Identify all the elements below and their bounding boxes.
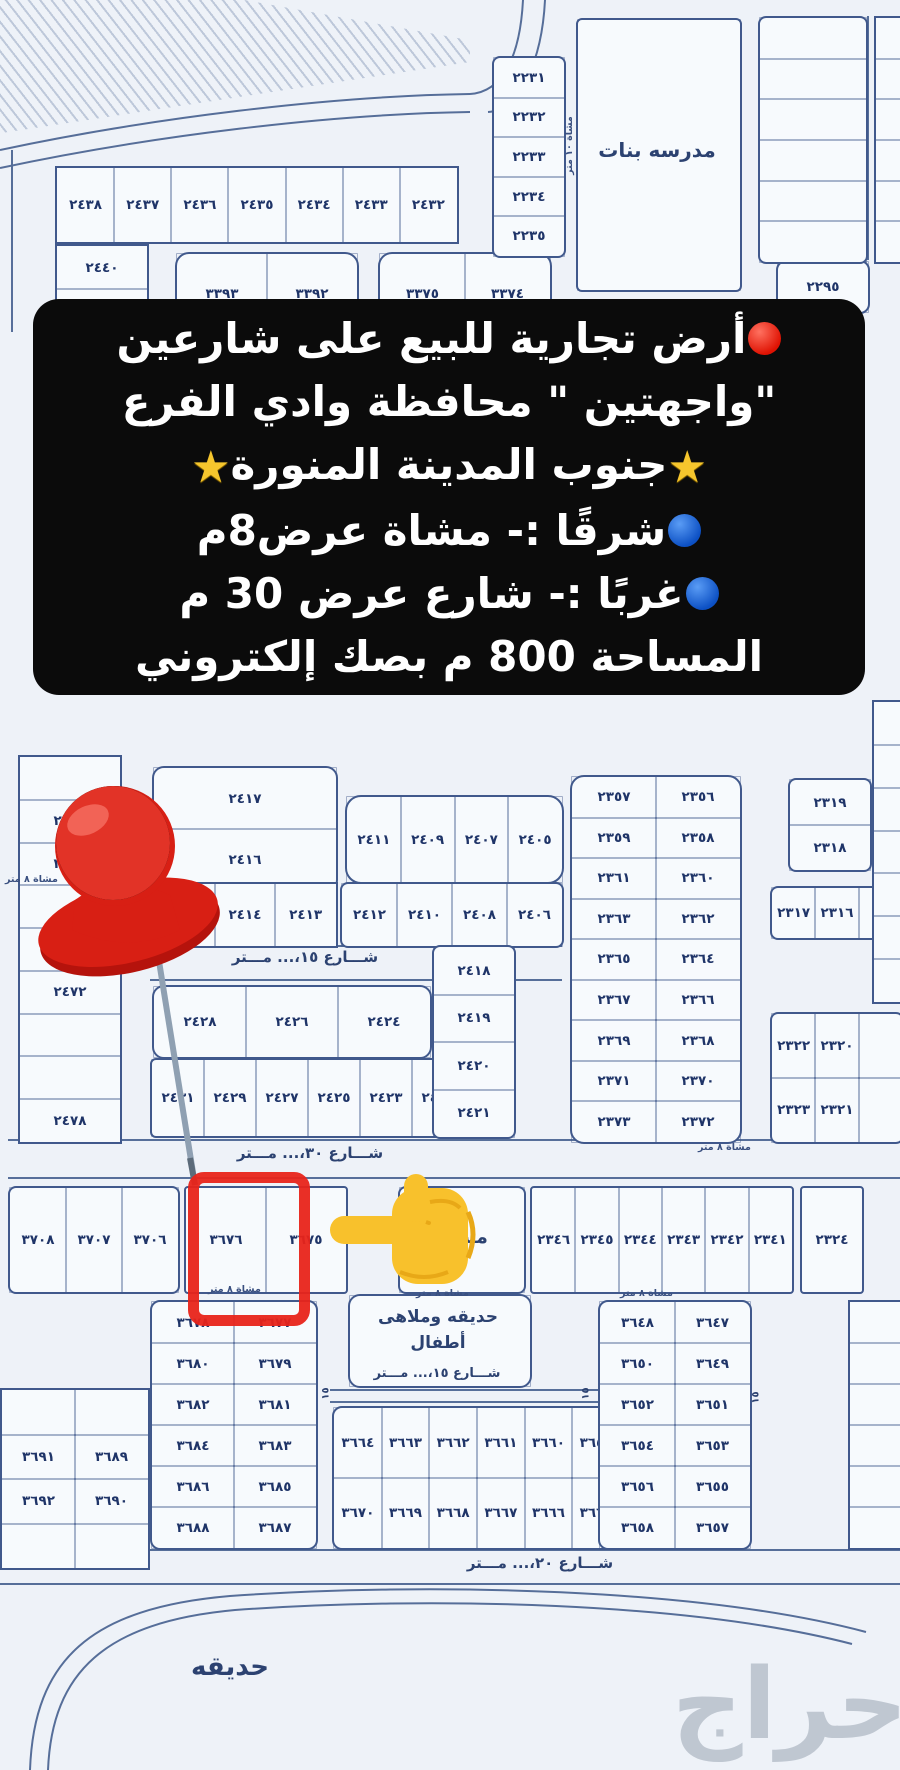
school-label: مدرسه بنات [576,138,738,162]
blue-circle-icon [686,577,719,610]
plot-cell: ٣٦٩١ [2,1435,75,1480]
plot-block-school_strip: ٢٢٣١٢٢٣٢٢٢٣٣٢٢٣٤٢٢٣٥ [492,56,566,258]
park-playground-label: حديقه وملاهى أطفال [352,1304,524,1357]
plot-cell: ٢٤٢٦ [246,987,338,1057]
plot-cell: ٢٣٧٢ [656,1101,740,1142]
plot-block-row2431: ٢٤٣١٢٤٢٩٢٤٢٧٢٤٢٥٢٤٢٣٢٤٢٢ [150,1058,466,1138]
listing-line: ★جنوب المدينة المنورة★ [33,433,865,499]
plot-cell: ٢٤٠٧ [455,797,509,882]
star-icon: ★ [191,442,230,493]
plot-cell: ٢٤١٠ [397,884,452,946]
plot-block-row2411: ٢٤١١٢٤٠٩٢٤٠٧٢٤٠٥ [345,795,564,884]
plot-cell: ٢٣٦٥ [572,939,656,980]
plot-cell: ٢٢٣٤ [494,177,564,217]
plot-cell: ٢٤١٤ [215,884,276,946]
plot-cell: ٢٤٣١ [152,1060,204,1136]
plot-cell: ٢٣٦٢ [656,899,740,940]
plot-cell: ٢٤٢٠ [434,1042,514,1090]
plot-cell: ٢٢٣٥ [494,216,564,256]
plot-cell: ٢٤٠٩ [401,797,455,882]
street-15m-label-mid: شـــارع ١٥،... مـــتر [200,948,410,966]
plot-cell: ٢٣٥٧ [572,777,656,818]
plot-cell: ٣٦٦٩ [382,1478,430,1548]
plot-cell [760,18,866,59]
plot-cell [876,18,900,59]
plot-block-bl_mid: ٣٦٦٤٣٦٦٣٣٦٦٢٣٦٦١٣٦٦٠٣٦٥٩٣٦٧٠٣٦٦٩٣٦٦٨٣٦٦٧… [332,1406,622,1550]
plot-block-bl_right: ٣٦٤٨٣٦٤٧٣٦٥٠٣٦٤٩٣٦٥٢٣٦٥١٣٦٥٤٣٦٥٣٣٦٥٦٣٦٥٥… [598,1300,752,1550]
width-15-tick-1: ١٥ [321,1387,332,1399]
street-20m-label: شـــارع ٢٠،... مـــتر [420,1554,660,1572]
plot-block-row3708: ٣٧٠٨٣٧٠٧٣٧٠٦ [8,1186,180,1294]
plot-block-bl_right_edge [848,1300,900,1550]
plot-cell: ٣٦٦٤ [334,1408,382,1478]
plot-cell: ٢٤٣٨ [57,168,114,242]
plot-cell [876,99,900,140]
plot-cell [760,181,866,222]
street-15m-label-bottom: شـــارع ١٥،... مـــتر [332,1366,542,1381]
plot-cell: ٢٣٧١ [572,1061,656,1102]
plot-cell: ٣٦٥٠ [600,1343,675,1384]
plot-cell [760,59,866,100]
plot-cell: ٢٤١١ [347,797,401,882]
highlight-rectangle [188,1172,310,1326]
plot-cell [760,140,866,181]
parcel-blocks: ٢٤٣٨٢٤٣٧٢٤٣٦٢٤٣٥٢٤٣٤٢٤٣٣٢٤٣٢٢٤٤٠٢٤٤٢٣٣٩٣… [0,0,900,1770]
plot-cell: ٣٦٥٨ [600,1507,675,1548]
listing-line-text: غربًا :- شارع عرض 30 م [179,569,683,618]
plot-cell: ٢٣٦١ [572,858,656,899]
plot-cell [859,1078,900,1142]
plot-cell: ٢٣٥٦ [656,777,740,818]
plot-cell: ٣٦٨٤ [152,1425,234,1466]
listing-image: ٢٤٣٨٢٤٣٧٢٤٣٦٢٤٣٥٢٤٣٤٢٤٣٣٢٤٣٢٢٤٤٠٢٤٤٢٣٣٩٣… [0,0,900,1770]
plot-cell: ٣٦٥٧ [675,1507,750,1548]
plot-cell: ٢٤٤٠ [57,246,147,289]
plot-cell [760,99,866,140]
ped-path-8m-label-4: مشاة ٨ متر [620,1288,673,1299]
plot-cell: ٢٤٣٣ [343,168,400,242]
plot-cell: ٢٢٣٢ [494,98,564,138]
plot-cell [874,916,900,959]
listing-line: المساحة 800 م بصك إلكتروني [33,625,865,688]
plot-cell: ٢٣٤١ [749,1188,792,1292]
plot-cell [876,221,900,262]
plot-cell: ٢٣٢٠ [815,1014,858,1078]
plot-cell: ٢٤١٦ [154,829,336,890]
plot-cell: ٣٦٨٩ [75,1435,148,1480]
plot-cell: ٢٤٦٤ [20,800,120,843]
plot-cell: ٢٤٢٤ [338,987,430,1057]
plot-block-col2319: ٢٣١٩٢٣١٨ [788,778,872,872]
plot-cell [876,181,900,222]
ped-path-10m-label: مشاة ١٠ متر [564,116,575,175]
plot-cell: ٢٤٠٦ [507,884,562,946]
plot-block-tr_edge [874,16,900,264]
plot-cell [760,221,866,262]
plot-block-pairs2356: ٢٣٥٧٢٣٥٦٢٣٥٩٢٣٥٨٢٣٦١٢٣٦٠٢٣٦٣٢٣٦٢٢٣٦٥٢٣٦٤… [570,775,742,1144]
plot-cell: ٢٣٧٠ [656,1061,740,1102]
plot-block-blk2417: ٢٤١٧٢٤١٦ [152,766,338,892]
plot-cell: ٣٦٨٠ [152,1343,234,1384]
listing-line-text: جنوب المدينة المنورة [231,440,668,489]
plot-cell: ٢٣٤٢ [705,1188,748,1292]
listing-line: شرقًا :- مشاة عرض8م [33,499,865,562]
plot-cell: ٣٦٥٢ [600,1384,675,1425]
plot-cell: ٢٣٦٨ [656,1020,740,1061]
plot-cell: ٢٤٣٦ [171,168,228,242]
plot-cell: ٢٤٢٥ [308,1060,360,1136]
plot-cell [874,959,900,1002]
plot-cell: ٣٦٤٧ [675,1302,750,1343]
plot-cell: ٣٦٦٨ [429,1478,477,1548]
plot-cell: ٣٦٥٦ [600,1466,675,1507]
ped-path-8m-label-5: مشاة ٨ متر [698,1142,751,1153]
plot-block-rows2322: ٢٣٢٢٢٣٢٠٢٣٢٣٢٣٢١ [770,1012,900,1144]
listing-line: "واجهتين " محافظة وادي الفرع [33,370,865,433]
plot-cell: ٣٦٤٩ [675,1343,750,1384]
plot-cell [874,831,900,874]
plot-cell: ٢٣٧٣ [572,1101,656,1142]
plot-cell: ٢٣٦٧ [572,980,656,1021]
plot-cell: ٣٦٦٠ [525,1408,573,1478]
plot-cell: ٢٣٤٥ [575,1188,618,1292]
plot-cell: ٢٤٢١ [434,1090,514,1138]
haraj-watermark: حراج [672,1648,900,1762]
plot-cell: ٣٦٥٣ [675,1425,750,1466]
plot-cell: ٢٤٣٤ [286,168,343,242]
plot-cell: ٢٣٢١ [815,1078,858,1142]
plot-cell [75,1524,148,1569]
plot-cell: ٢٣١٨ [790,825,870,870]
plot-cell: ٢٤٧٨ [20,1099,120,1142]
plot-cell [876,59,900,100]
plot-cell: ٣٦٨٦ [152,1466,234,1507]
plot-cell [850,1384,900,1425]
plot-cell [850,1425,900,1466]
plot-block-row2428: ٢٤٢٨٢٤٢٦٢٤٢٤ [152,985,432,1059]
plot-cell: ٣٦٩٠ [75,1479,148,1524]
plot-cell: ٢٣٤٣ [662,1188,705,1292]
plot-block-top_row: ٢٤٣٨٢٤٣٧٢٤٣٦٢٤٣٥٢٤٣٤٢٤٣٣٢٤٣٢ [55,166,459,244]
plot-cell: ٣٦٦١ [477,1408,525,1478]
street-30m-label: شـــارع ٣٠،... مـــتر [190,1144,430,1162]
width-15-tick-4: ١٥ [139,901,150,913]
plot-cell [850,1343,900,1384]
plot-block-row2415b: ٢٤١٢٢٤١٠٢٤٠٨٢٤٠٦ [340,882,564,948]
plot-cell: ٢٤٠٨ [452,884,507,946]
plot-block-bl_far_left: ٣٦٩١٣٦٨٩٣٦٩٢٣٦٩٠ [0,1388,150,1570]
plot-cell [874,788,900,831]
plot-cell: ٢٣٥٩ [572,818,656,859]
plot-cell: ٢٤٢٧ [256,1060,308,1136]
plot-cell [850,1302,900,1343]
plot-cell: ٢٣٦٠ [656,858,740,899]
plot-cell: ٢٣٤٦ [532,1188,575,1292]
listing-line-text: أرض تجارية للبيع على شارعين [117,314,747,363]
plot-cell: ٢٣١٦ [815,888,858,938]
plot-cell: ٢٤١٥ [154,884,215,946]
plot-cell: ٣٦٨٥ [234,1466,316,1507]
plot-cell: ٣٦٦٣ [382,1408,430,1478]
plot-cell: ٣٦٧٠ [334,1478,382,1548]
plot-cell: ٣٧٠٨ [10,1188,66,1292]
plot-cell: ٢٣٢٤ [802,1188,862,1292]
plot-block-row2346: ٢٣٤٦٢٣٤٥٢٣٤٤٢٣٤٣٢٣٤٢٢٣٤١ [530,1186,794,1294]
plot-cell [874,745,900,788]
ped-path-8m-label-1: مشاة ٨ متر [5,874,58,885]
plot-cell: ٢٣٦٩ [572,1020,656,1061]
width-15-tick-2: ١٥ [581,1387,592,1399]
listing-line-text: "واجهتين " محافظة وادي الفرع [122,377,777,426]
plot-cell: ٣٦٦٦ [525,1478,573,1548]
plot-block-mid_right_edge [872,700,900,1004]
listing-line: غربًا :- شارع عرض 30 م [33,562,865,625]
plot-cell: ٢٤٢٩ [204,1060,256,1136]
plot-cell: ٣٦٧٩ [234,1343,316,1384]
plot-cell: ٢٤٠٥ [508,797,562,882]
plot-cell: ٢٢٣٣ [494,137,564,177]
plot-cell: ٢٣١٧ [772,888,815,938]
plot-cell: ٣٦٨٢ [152,1384,234,1425]
plot-block-mid_left_col: ٢٤٦٤٢٤٦٦٢٤٧٢٢٤٧٨ [18,755,122,1144]
plot-cell: ٣٦٨١ [234,1384,316,1425]
plot-block-row2415a: ٢٤١٥٢٤١٤٢٤١٣ [152,882,338,948]
plot-cell: ٣٦٥١ [675,1384,750,1425]
plot-cell: ٢٣٦٦ [656,980,740,1021]
plot-cell [874,702,900,745]
mosque-label: مسجد [398,1226,522,1248]
plot-cell [20,1056,120,1099]
star-icon: ★ [667,442,706,493]
plot-cell: ٢٤٣٥ [228,168,285,242]
ped-path-8m-label-3: مشاة ٨ متر [416,1288,469,1299]
plot-cell: ٣٦٤٨ [600,1302,675,1343]
plot-cell: ٢٤١٧ [154,768,336,829]
red-circle-icon [748,322,781,355]
plot-cell: ٢٣٦٣ [572,899,656,940]
plot-cell: ٢٣٥٨ [656,818,740,859]
plot-block-col2418: ٢٤١٨٢٤١٩٢٤٢٠٢٤٢١ [432,945,516,1139]
plot-cell [2,1524,75,1569]
plot-cell: ٢٤٣٧ [114,168,171,242]
plot-cell: ٢٢٣١ [494,58,564,98]
listing-line-text: شرقًا :- مشاة عرض8م [197,506,666,555]
plot-cell: ٢٣١٩ [790,780,870,825]
width-15-tick-3: ١٥ [751,1391,762,1403]
plot-cell: ٣٦٨٧ [234,1507,316,1548]
plot-block-bl_left: ٣٦٧٨٣٦٧٧٣٦٨٠٣٦٧٩٣٦٨٢٣٦٨١٣٦٨٤٣٦٨٣٣٦٨٦٣٦٨٥… [150,1300,318,1550]
plot-cell: ٢٤١٨ [434,947,514,995]
plot-cell: ٢٤٢٨ [154,987,246,1057]
blue-circle-icon [668,514,701,547]
plot-cell: ٢٤١٩ [434,995,514,1043]
listing-line-text: المساحة 800 م بصك إلكتروني [135,632,763,681]
plot-cell [874,873,900,916]
plot-cell: ٢٤١٣ [275,884,336,946]
plot-cell: ٣٧٠٦ [122,1188,178,1292]
plot-cell [2,1390,75,1435]
plot-cell: ٣٦٨٣ [234,1425,316,1466]
plot-cell: ٣٦٨٨ [152,1507,234,1548]
plot-cell: ٢٣٦٤ [656,939,740,980]
plot-block-tr_block [758,16,868,264]
plot-cell: ٢٣٤٤ [619,1188,662,1292]
plot-cell: ٢٤٢٣ [360,1060,412,1136]
plot-cell: ٢٤٧٢ [20,971,120,1014]
plot-cell: ٢٣٢٣ [772,1078,815,1142]
listing-text-box: أرض تجارية للبيع على شارعين"واجهتين " مح… [33,299,865,695]
plot-cell: ٣٦٦٧ [477,1478,525,1548]
plot-cell [859,1014,900,1078]
plot-cell: ٢٣٢٢ [772,1014,815,1078]
plot-cell [876,140,900,181]
plot-cell: ٢٤١٢ [342,884,397,946]
plot-cell [850,1507,900,1548]
plot-cell: ٣٦٦٢ [429,1408,477,1478]
plot-cell [850,1466,900,1507]
plot-cell [20,1014,120,1057]
plot-cell [20,757,120,800]
plot-cell: ٢٤٣٢ [400,168,457,242]
plot-cell [75,1390,148,1435]
plot-cell: ٣٦٩٢ [2,1479,75,1524]
plot-block-plot2324: ٢٣٢٤ [800,1186,864,1294]
listing-line: أرض تجارية للبيع على شارعين [33,307,865,370]
plot-cell: ٣٦٥٥ [675,1466,750,1507]
plot-cell [20,885,120,928]
plot-cell: ٣٦٥٤ [600,1425,675,1466]
plot-cell [20,928,120,971]
plot-cell: ٣٧٠٧ [66,1188,122,1292]
park-label: حديقه [150,1652,310,1682]
